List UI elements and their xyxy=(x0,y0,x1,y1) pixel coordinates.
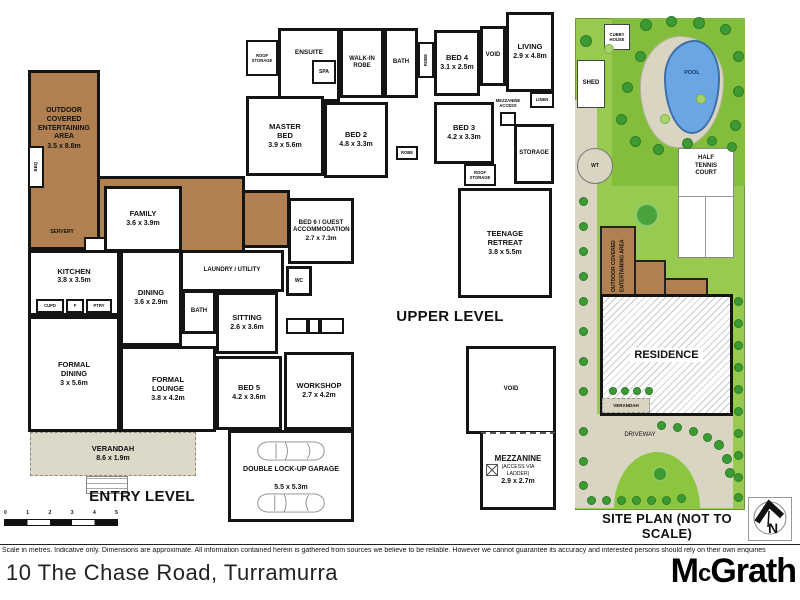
robe: ROBE xyxy=(396,146,418,160)
shrub-dot xyxy=(632,496,641,505)
shrub-dot xyxy=(714,440,724,450)
entry-level-label: ENTRY LEVEL xyxy=(62,488,222,505)
room-workshop: WORKSHOP 2.7 x 4.2m xyxy=(284,352,354,430)
shrub-dot xyxy=(730,120,741,131)
shrub-dot xyxy=(616,114,627,125)
mcgrath-logo: McGrath xyxy=(540,552,796,591)
room-roof-storage-left: ROOF STORAGE xyxy=(246,40,278,76)
tennis-line xyxy=(705,196,706,257)
room-family: FAMILY 3.6 x 3.9m xyxy=(104,186,182,252)
room-formal-dining: FORMAL DINING 3 x 5.6m xyxy=(28,316,120,432)
room-bed6-guest: BED 6 / GUEST ACCOMMODATION 2.7 x 7.3m xyxy=(288,198,354,264)
cupboard-cupd: CUPD xyxy=(36,299,64,313)
site-outdoor-label: OUTDOOR COVERED ENTERTAINING AREA xyxy=(610,231,627,301)
fridge-space: F xyxy=(66,299,84,313)
half-tennis-court: HALF TENNIS COURT xyxy=(678,148,734,258)
shrub-dot xyxy=(734,451,743,460)
site-verandah: VERANDAH xyxy=(602,398,650,413)
shrub-dot xyxy=(617,496,626,505)
room-master-bed: MASTER BED 3.9 x 5.6m xyxy=(246,96,324,176)
room-bed2: BED 2 4.8 x 3.3m xyxy=(324,102,388,178)
shrub-dot xyxy=(579,481,588,490)
shrub-dot xyxy=(630,136,641,147)
shrub-dot xyxy=(579,457,588,466)
car-icon xyxy=(241,438,341,464)
tennis-line xyxy=(679,196,733,197)
deck-east-wing xyxy=(242,190,290,248)
hall-cupboard xyxy=(308,318,320,334)
shrub-dot xyxy=(707,136,717,146)
void-upper: VOID xyxy=(480,26,506,86)
room-bbq: BBQ xyxy=(28,146,44,188)
room-garage: DOUBLE LOCK-UP GARAGE 5.5 x 5.3m xyxy=(228,430,354,522)
shrub-dot xyxy=(703,433,712,442)
shrub-dot xyxy=(689,427,698,436)
address-title: 10 The Chase Road, Turramurra xyxy=(6,560,466,586)
shrub-dot xyxy=(727,142,737,152)
shrub-dot xyxy=(579,222,588,231)
room-bed3: BED 3 4.2 x 3.3m xyxy=(434,102,494,164)
scale-bar-ticks: 012345 xyxy=(4,510,118,518)
shrub-dot xyxy=(733,51,744,62)
shrub-dot xyxy=(662,496,671,505)
shrub-dot xyxy=(722,454,732,464)
shrub-dot xyxy=(647,496,656,505)
residence-label: RESIDENCE xyxy=(630,348,702,362)
room-laundry: LAUNDRY / UTILITY xyxy=(180,250,284,292)
room-walk-in-robe: WALK-IN ROBE xyxy=(340,28,384,98)
shrub-dot xyxy=(733,86,744,97)
site-plan-label: SITE PLAN (NOT TO SCALE) xyxy=(583,511,751,541)
mezzanine-access-label: MEZZANINE ACCESS xyxy=(488,98,528,108)
hall-cupboard xyxy=(286,318,308,334)
room-bath-upper: BATH xyxy=(384,28,418,98)
room-bed4: BED 4 3.1 x 2.5m xyxy=(434,30,480,96)
room-bed5: BED 5 4.2 x 3.6m xyxy=(216,356,282,430)
shrub-dot xyxy=(579,197,588,206)
footer-divider xyxy=(0,544,800,545)
shrub-dot xyxy=(657,421,666,430)
shrub-dot xyxy=(696,94,706,104)
shrub-dot xyxy=(640,19,652,31)
shrub-dot xyxy=(609,387,617,395)
shrub-dot xyxy=(579,327,588,336)
shrub-dot xyxy=(725,468,735,478)
shrub-dot xyxy=(734,429,743,438)
island-tree xyxy=(652,466,668,482)
shrub-dot xyxy=(633,387,641,395)
spa: SPA xyxy=(312,60,336,84)
car-icon xyxy=(241,490,341,516)
pool-label: POOL xyxy=(666,70,718,77)
floorplan-page: OUTDOOR COVERED ENTERTAINING AREA 3.5 x … xyxy=(0,0,800,600)
shrub-dot xyxy=(653,144,664,155)
shrub-dot xyxy=(734,385,743,394)
shrub-dot xyxy=(734,363,743,372)
shrub-dot xyxy=(645,387,653,395)
hall-cupboard xyxy=(320,318,344,334)
shrub-dot xyxy=(579,247,588,256)
room-living: LIVING 2.9 x 4.8m xyxy=(506,12,554,92)
shrub-dot xyxy=(677,494,686,503)
shrub-dot xyxy=(660,114,670,124)
shed: SHED xyxy=(577,60,605,108)
shrub-dot xyxy=(734,297,743,306)
room-teenage-retreat: TEENAGE RETREAT 3.8 x 5.5m xyxy=(458,188,552,298)
shrub-dot xyxy=(602,496,611,505)
shrub-dot xyxy=(579,357,588,366)
lawn-tree xyxy=(634,202,660,228)
shrub-dot xyxy=(734,319,743,328)
water-tank: WT xyxy=(577,148,613,184)
shrub-dot xyxy=(682,138,693,149)
ladder-icon xyxy=(486,464,498,476)
pantry: PTRY xyxy=(86,299,112,313)
shrub-dot xyxy=(720,24,731,35)
robe: ROBE xyxy=(418,42,434,78)
upper-level-label: UPPER LEVEL xyxy=(380,308,520,325)
room-bath-entry: BATH xyxy=(182,290,216,334)
shrub-dot xyxy=(621,387,629,395)
shrub-dot xyxy=(579,387,588,396)
shrub-dot xyxy=(622,82,633,93)
driveway-label: DRIVEWAY xyxy=(608,432,672,439)
void-mezzanine: VOID xyxy=(466,346,556,434)
shrub-dot xyxy=(579,297,588,306)
shrub-dot xyxy=(734,341,743,350)
scale-bar xyxy=(4,519,118,526)
room-dining: DINING 3.6 x 2.9m xyxy=(120,250,182,346)
shrub-dot xyxy=(587,496,596,505)
shrub-dot xyxy=(604,44,614,54)
room-storage: STORAGE xyxy=(514,124,554,184)
shrub-dot xyxy=(666,16,677,27)
shrub-dot xyxy=(579,272,588,281)
north-label: N xyxy=(768,520,778,536)
shrub-dot xyxy=(734,493,743,502)
servery-label: SERVERY xyxy=(30,229,94,235)
room-roof-storage-right: ROOF STORAGE xyxy=(464,164,496,186)
shrub-dot xyxy=(579,427,588,436)
shrub-dot xyxy=(673,423,682,432)
shrub-dot xyxy=(580,35,592,47)
linen: LINEN xyxy=(530,92,554,108)
shrub-dot xyxy=(734,407,743,416)
room-sitting: SITTING 2.6 x 3.6m xyxy=(216,292,278,354)
room-wc: WC xyxy=(286,266,312,296)
shrub-dot xyxy=(635,51,646,62)
room-formal-lounge: FORMAL LOUNGE 3.8 x 4.2m xyxy=(120,346,216,432)
shrub-dot xyxy=(693,17,705,29)
north-compass-icon: N xyxy=(748,497,792,541)
verandah-entry: VERANDAH 8.6 x 1.9m xyxy=(30,432,196,476)
site-verandah-label: VERANDAH xyxy=(613,403,639,408)
